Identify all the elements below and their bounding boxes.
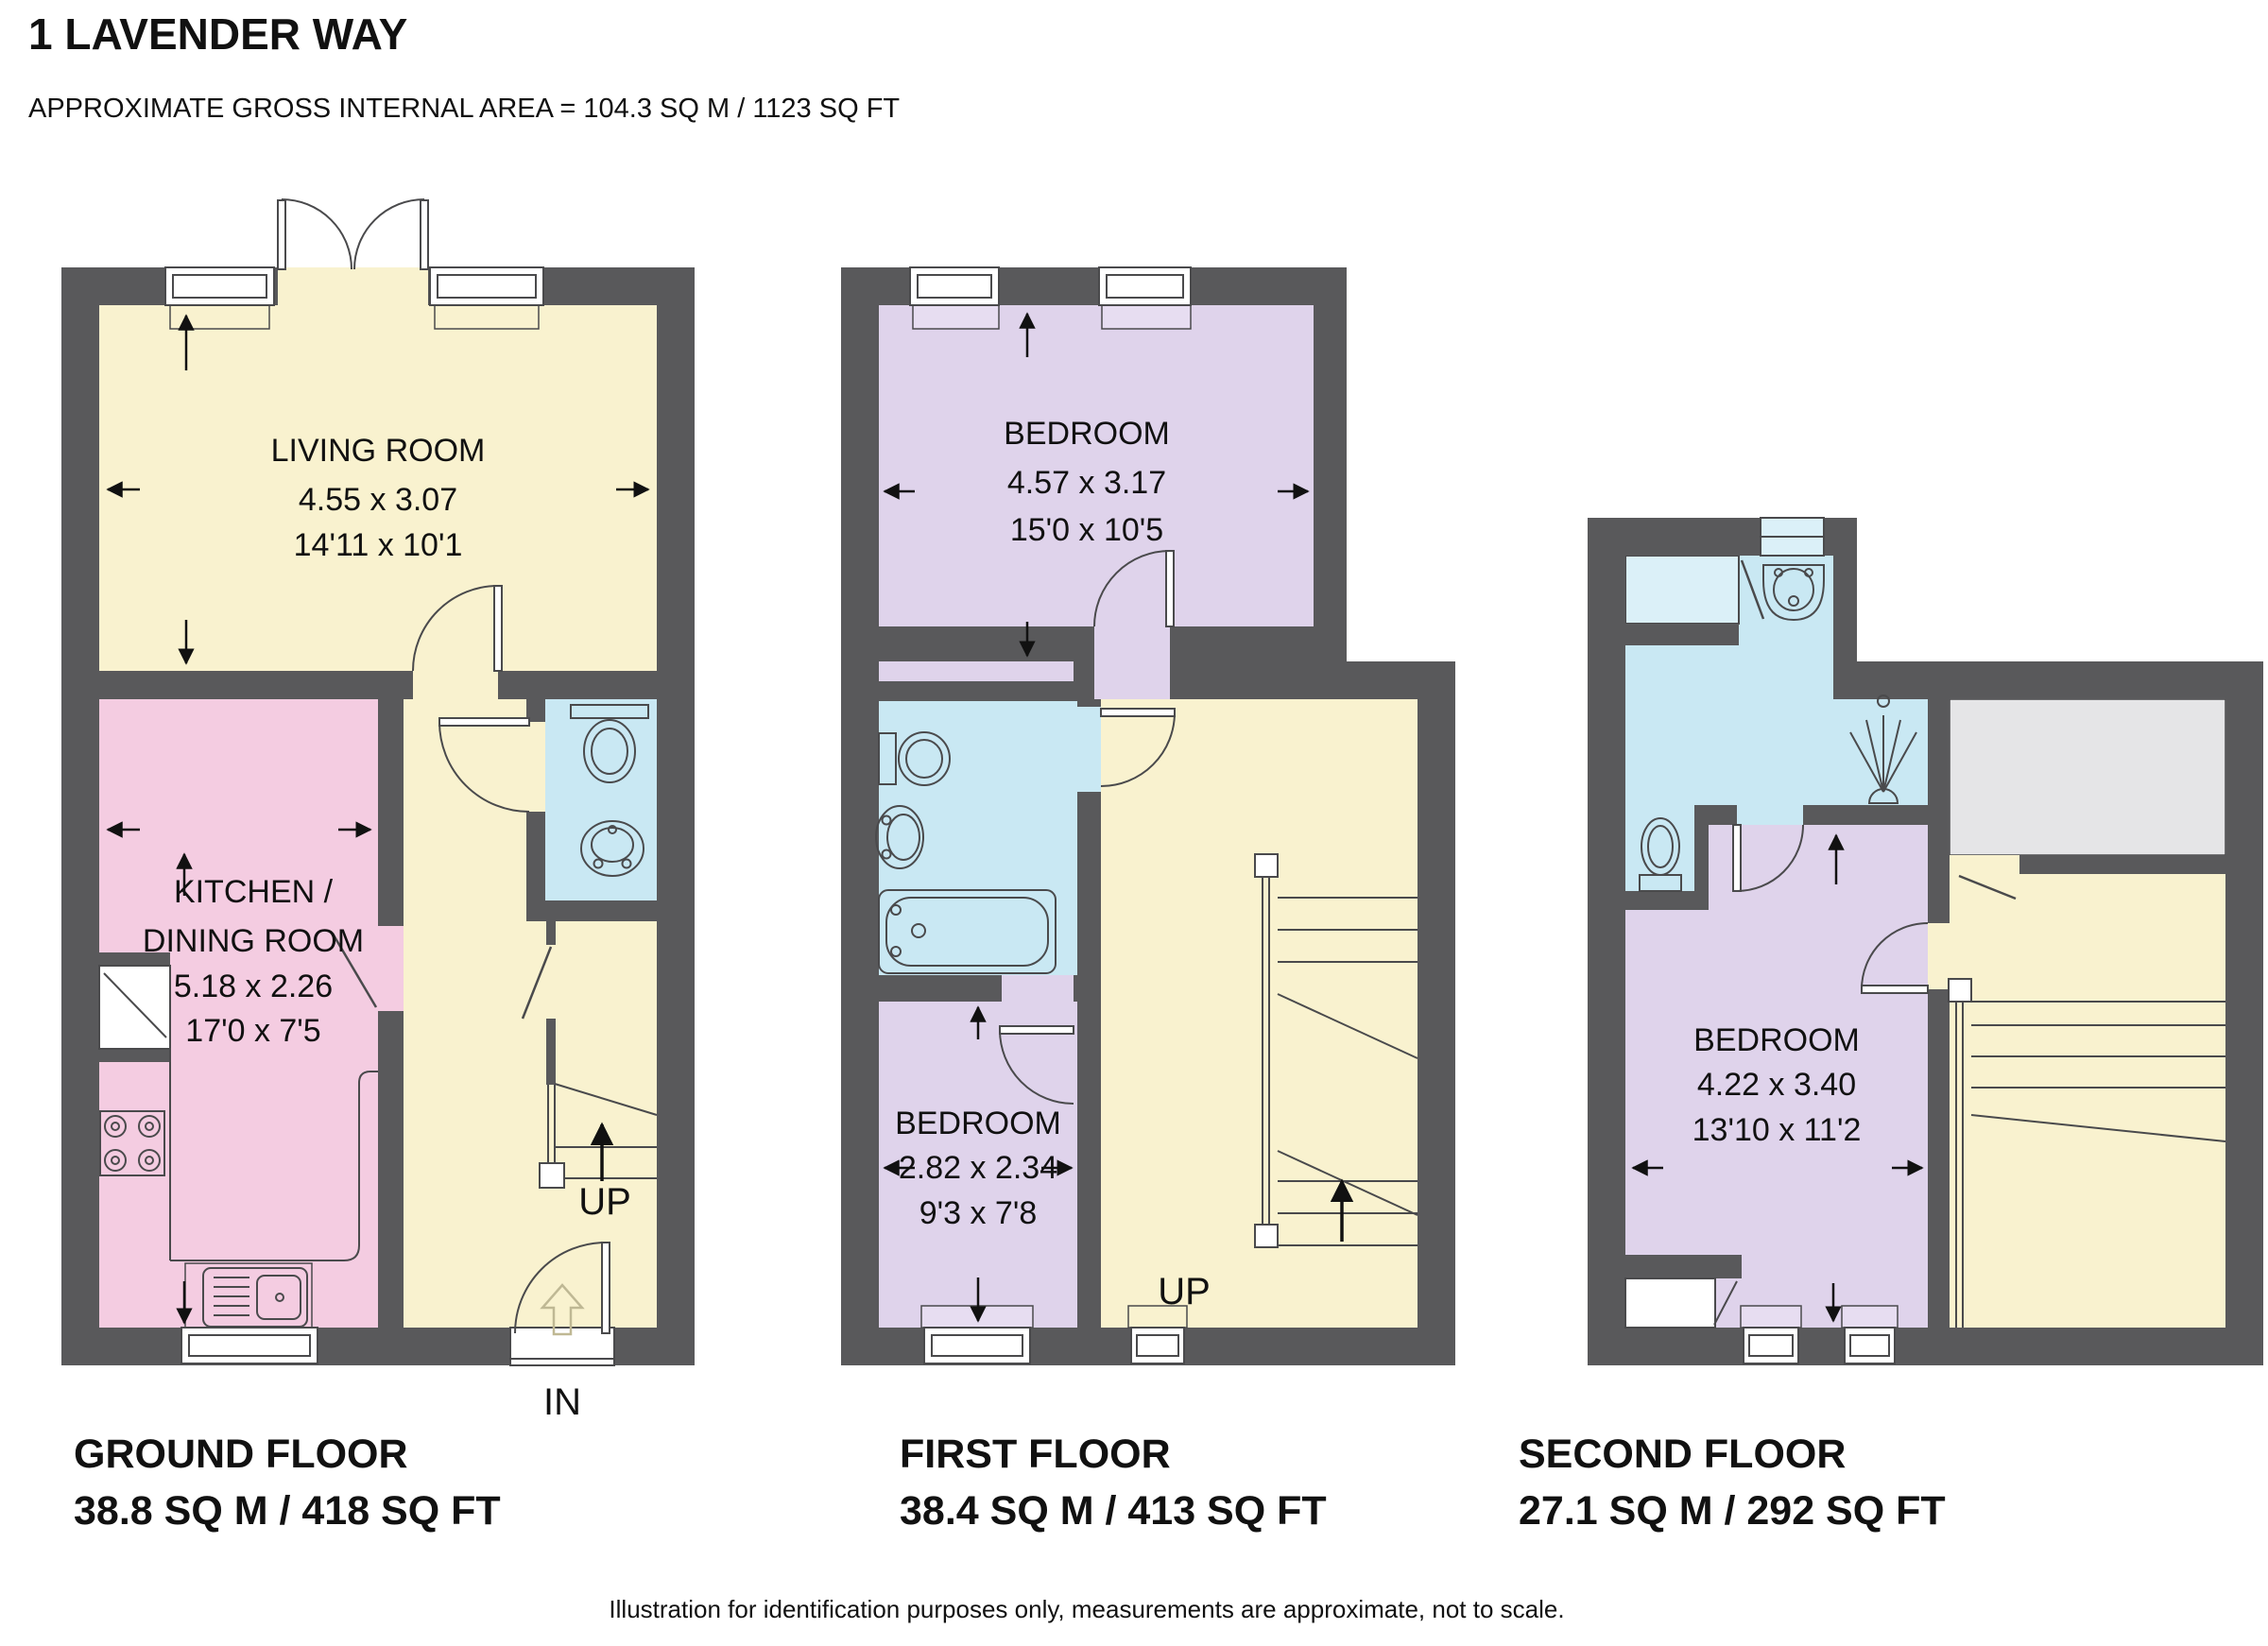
bath-door-opening bbox=[1737, 805, 1803, 825]
bedroom1-label: BEDROOM bbox=[1004, 416, 1170, 452]
newel-post bbox=[1949, 979, 1971, 1002]
first-floor-area: 38.4 SQ M / 413 SQ FT bbox=[900, 1488, 1327, 1534]
french-doors bbox=[278, 199, 428, 269]
bathroom-door-opening bbox=[1077, 707, 1101, 792]
second-bedroom-dim-m: 4.22 x 3.40 bbox=[1697, 1067, 1856, 1103]
ground-floor-area: 38.8 SQ M / 418 SQ FT bbox=[74, 1488, 501, 1534]
bedroom2-label: BEDROOM bbox=[895, 1106, 1061, 1141]
kitchen-label-2: DINING ROOM bbox=[143, 923, 364, 959]
first-floor-title: FIRST FLOOR bbox=[900, 1432, 1171, 1477]
second-floor-area: 27.1 SQ M / 292 SQ FT bbox=[1519, 1488, 1946, 1534]
bedroom2-dim-ft: 9'3 x 7'8 bbox=[919, 1195, 1038, 1231]
second-landing bbox=[1950, 874, 2225, 1328]
living-room-dim-m: 4.55 x 3.07 bbox=[299, 482, 457, 518]
kitchen-label-1: KITCHEN / bbox=[174, 874, 334, 910]
french-door-opening bbox=[278, 267, 428, 305]
first-up-label: UP bbox=[1158, 1271, 1211, 1312]
bedroom1-door-opening bbox=[1094, 626, 1170, 699]
ground-floor-title: GROUND FLOOR bbox=[74, 1432, 408, 1477]
second-bedroom-dim-ft: 13'10 x 11'2 bbox=[1692, 1112, 1862, 1148]
bedroom1-dim-ft: 15'0 x 10'5 bbox=[1010, 512, 1163, 548]
newel-post bbox=[1255, 1225, 1278, 1247]
wc-door-opening bbox=[526, 722, 545, 812]
living-room-dim-ft: 14'11 x 10'1 bbox=[294, 527, 463, 563]
floor-titles: GROUND FLOOR 38.8 SQ M / 418 SQ FT FIRST… bbox=[74, 1432, 1946, 1534]
kitchen-door-opening bbox=[378, 926, 404, 1011]
floorplan-page: 1 LAVENDER WAY APPROXIMATE GROSS INTERNA… bbox=[0, 0, 2268, 1646]
first-floor-plan: BEDROOM 4.57 x 3.17 15'0 x 10'5 BEDROOM … bbox=[841, 267, 1455, 1365]
bedroom2-door-opening bbox=[1002, 975, 1074, 1002]
side-door-recess bbox=[99, 966, 170, 1049]
kitchen-dim-m: 5.18 x 2.26 bbox=[174, 969, 333, 1004]
living-door-opening bbox=[413, 671, 498, 699]
wc-room bbox=[545, 699, 657, 900]
living-room-label: LIVING ROOM bbox=[271, 433, 486, 469]
ground-floor-plan: LIVING ROOM 4.55 x 3.07 14'11 x 10'1 KIT… bbox=[61, 199, 695, 1423]
second-floor-plan: BEDROOM 4.22 x 3.40 13'10 x 11'2 bbox=[1588, 518, 2263, 1365]
kitchen-dim-ft: 17'0 x 7'5 bbox=[185, 1013, 320, 1049]
newel-post bbox=[1255, 854, 1278, 877]
second-floor-title: SECOND FLOOR bbox=[1519, 1432, 1846, 1477]
newel-post bbox=[540, 1163, 564, 1188]
bedroom1-dim-m: 4.57 x 3.17 bbox=[1007, 465, 1166, 501]
second-bedroom-label: BEDROOM bbox=[1693, 1022, 1860, 1058]
storage-area bbox=[1950, 699, 2225, 855]
page-subtitle: APPROXIMATE GROSS INTERNAL AREA = 104.3 … bbox=[28, 94, 900, 124]
cupboard-area bbox=[1625, 556, 1739, 624]
storage-door-opening bbox=[1950, 855, 2019, 874]
floorplan-drawing: 1 LAVENDER WAY APPROXIMATE GROSS INTERNA… bbox=[0, 0, 2268, 1646]
landing-door-opening bbox=[1928, 923, 1950, 989]
disclaimer-text: Illustration for identification purposes… bbox=[609, 1595, 1564, 1623]
ground-up-label: UP bbox=[578, 1181, 631, 1223]
vestibule-strip bbox=[879, 661, 1074, 681]
page-title: 1 LAVENDER WAY bbox=[28, 9, 407, 59]
bedroom2-dim-m: 2.82 x 2.34 bbox=[899, 1150, 1057, 1186]
ground-in-label: IN bbox=[543, 1381, 581, 1423]
